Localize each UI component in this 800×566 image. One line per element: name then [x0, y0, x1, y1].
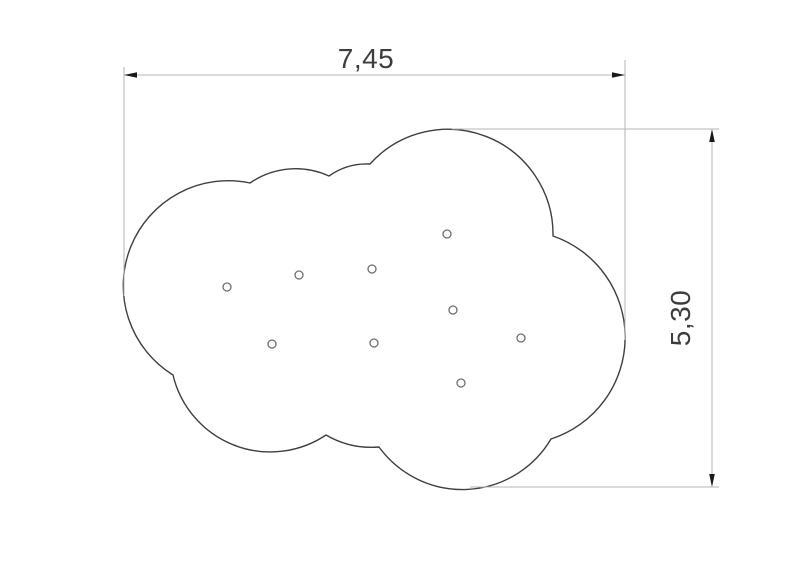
height-dimension-value: 5,30 [665, 290, 696, 347]
technical-drawing-svg: 7,45 5,30 [0, 0, 800, 566]
height-arrowhead-bottom-icon [709, 474, 715, 487]
width-arrowhead-left-icon [124, 72, 137, 78]
width-dimension-value: 7,45 [338, 43, 395, 74]
hole [443, 230, 451, 238]
width-arrowhead-right-icon [612, 72, 625, 78]
height-arrowhead-top-icon [709, 129, 715, 142]
hole [295, 271, 303, 279]
drawing-canvas: 7,45 5,30 [0, 0, 800, 566]
hole [457, 379, 465, 387]
cloud-part-outline [123, 129, 625, 489]
hole [449, 306, 457, 314]
hole [517, 334, 525, 342]
hole [223, 283, 231, 291]
hole [370, 339, 378, 347]
hole [268, 340, 276, 348]
hole [368, 265, 376, 273]
